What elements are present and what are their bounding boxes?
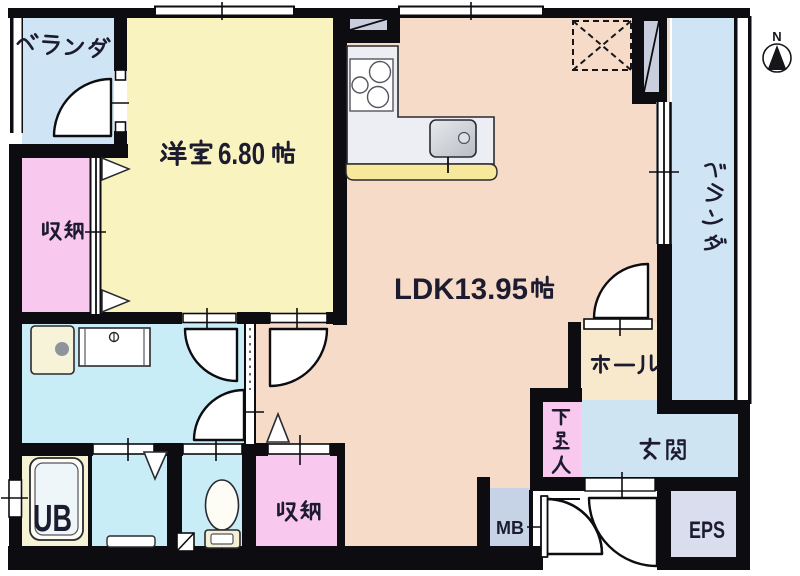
- svg-text:N: N: [772, 29, 781, 44]
- svg-text:EPS: EPS: [689, 517, 725, 544]
- svg-text:UB: UB: [33, 498, 72, 540]
- svg-text:MB: MB: [496, 518, 524, 538]
- svg-text:LDK13.95: LDK13.95: [394, 273, 528, 306]
- svg-text:6.80: 6.80: [218, 136, 265, 171]
